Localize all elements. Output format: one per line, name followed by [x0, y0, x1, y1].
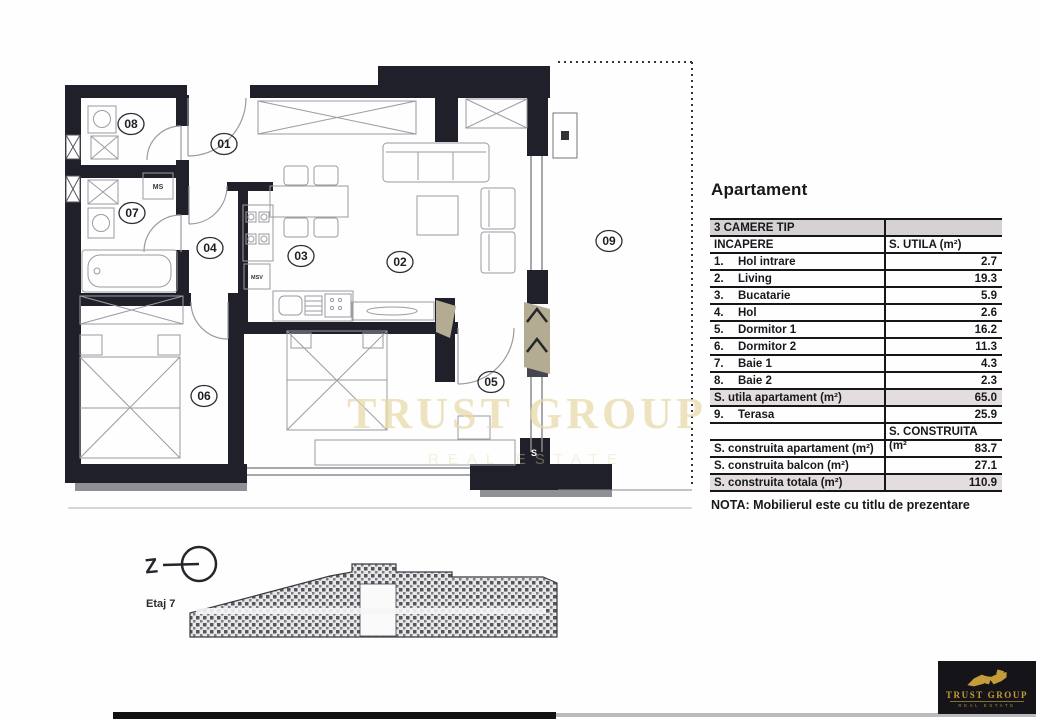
compass-letter: Z: [144, 554, 159, 578]
sofa: [383, 143, 489, 182]
room-label-03: 03: [288, 246, 314, 267]
subtotal-value: 65.0: [886, 390, 1002, 405]
svg-text:09: 09: [602, 234, 616, 248]
table-row-construita-total: S. construita totala (m²) 110.9: [710, 475, 1002, 492]
watermark-subtitle: REAL ESTATE: [428, 451, 626, 468]
msv-label: MSV: [251, 275, 263, 281]
svg-text:04: 04: [203, 241, 217, 255]
construita-value: 27.1: [886, 458, 1002, 473]
subtotal-label: S. utila apartament (m²): [710, 390, 886, 405]
keyplan: Etaj 7: [146, 564, 557, 637]
construita-label: S. construita apartament (m²): [710, 441, 886, 456]
table-header-row: INCAPERE S. UTILA (m²): [710, 237, 1002, 254]
table-row-construita: S. construita balcon (m²) 27.1: [710, 458, 1002, 475]
areas-table: 3 CAMERE TIP INCAPERE S. UTILA (m²) 1.Ho…: [710, 218, 1002, 492]
svg-text:02: 02: [393, 255, 407, 269]
dining-set: [270, 166, 348, 237]
col-header-incapere: INCAPERE: [710, 237, 886, 252]
svg-text:08: 08: [124, 117, 138, 131]
room-name: Terasa: [738, 408, 774, 422]
room-label-01: 01: [211, 134, 237, 155]
logo-tagline: REAL ESTATE: [958, 703, 1015, 708]
room-name: Living: [738, 272, 772, 286]
table-row-type: 3 CAMERE TIP: [710, 220, 1002, 237]
room-name: Hol intrare: [738, 255, 796, 269]
construita-header: S. CONSTRUITA (m²: [886, 424, 1002, 439]
col-header-utila: S. UTILA (m²): [886, 237, 1002, 252]
room-name: Baie 1: [738, 357, 772, 371]
room-area: 11.3: [886, 339, 1002, 354]
table-row: 3.Bucatarie 5.9: [710, 288, 1002, 305]
table-row: 2.Living 19.3: [710, 271, 1002, 288]
room-label-02: 02: [387, 252, 413, 273]
room-area: 19.3: [886, 271, 1002, 286]
bathroom1-fixtures: [82, 180, 177, 292]
svg-text:07: 07: [125, 206, 139, 220]
room-area: 2.3: [886, 373, 1002, 388]
room-label-08: 08: [118, 114, 144, 135]
room-area: 5.9: [886, 288, 1002, 303]
scanned-floorplan-page: MS MSV S 01 02 03 04 05 06 07 08 09 TRUS…: [0, 0, 1040, 720]
kitchen-counter: [273, 291, 353, 321]
table-row: 6.Dormitor 2 11.3: [710, 339, 1002, 356]
hall-wardrobes: [258, 99, 527, 134]
room-name: Bucatarie: [738, 289, 790, 303]
table-row-subtotal: S. utila apartament (m²) 65.0: [710, 390, 1002, 407]
page-title: Apartament: [711, 180, 807, 200]
room-label-04: 04: [197, 238, 223, 259]
table-row: 8.Baie 2 2.3: [710, 373, 1002, 390]
meter-box: [553, 113, 577, 158]
keyplan-corridor: [196, 608, 546, 614]
svg-text:03: 03: [294, 249, 308, 263]
room-label-09: 09: [596, 231, 622, 252]
svg-text:05: 05: [484, 375, 498, 389]
scan-artifacts: [113, 712, 1036, 719]
room-area: 25.9: [886, 407, 1002, 422]
construita-value: 110.9: [886, 475, 1002, 490]
armchairs: [481, 188, 515, 273]
north-compass: Z: [144, 547, 216, 581]
logo-name: TRUST GROUP: [946, 690, 1028, 700]
svg-text:01: 01: [217, 137, 231, 151]
ms-label: MS: [153, 184, 164, 191]
room-name: Dormitor 2: [738, 340, 796, 354]
table-row-terasa: 9.Terasa 25.9: [710, 407, 1002, 424]
coffee-table: [417, 196, 458, 235]
room-label-07: 07: [119, 203, 145, 224]
apartment-type-label: 3 CAMERE TIP: [710, 220, 886, 235]
room-label-06: 06: [191, 386, 217, 407]
trust-group-logo: TRUST GROUP REAL ESTATE: [938, 661, 1036, 714]
table-row: 4.Hol 2.6: [710, 305, 1002, 322]
watermark-title: TRUST GROUP: [347, 389, 707, 438]
room-area: 2.6: [886, 305, 1002, 320]
table-row: 1.Hol intrare 2.7: [710, 254, 1002, 271]
construita-label: S. construita balcon (m²): [710, 458, 886, 473]
room-area: 16.2: [886, 322, 1002, 337]
tv-bench: [352, 302, 434, 320]
room-name: Baie 2: [738, 374, 772, 388]
room-area: 2.7: [886, 254, 1002, 269]
table-row-construita-header: S. CONSTRUITA (m²: [710, 424, 1002, 441]
construita-value: 83.7: [886, 441, 1002, 456]
room-area: 4.3: [886, 356, 1002, 371]
bedroom2-furniture: [80, 296, 183, 458]
construita-label: S. construita totala (m²): [710, 475, 886, 490]
terrace-boundary: [68, 62, 692, 508]
logo-divider: [950, 701, 1024, 702]
keyplan-floor-label: Etaj 7: [146, 598, 175, 610]
logo-handshake-icon: [967, 668, 1007, 689]
room-name: Dormitor 1: [738, 323, 796, 337]
table-row-construita: S. construita apartament (m²) 83.7: [710, 441, 1002, 458]
room-name: Hol: [738, 306, 757, 320]
table-row: 7.Baie 1 4.3: [710, 356, 1002, 373]
bathroom2-fixtures: [88, 106, 118, 159]
nota-disclaimer: NOTA: Mobilierul este cu titlu de prezen…: [711, 498, 970, 512]
table-row: 5.Dormitor 1 16.2: [710, 322, 1002, 339]
svg-text:06: 06: [197, 389, 211, 403]
